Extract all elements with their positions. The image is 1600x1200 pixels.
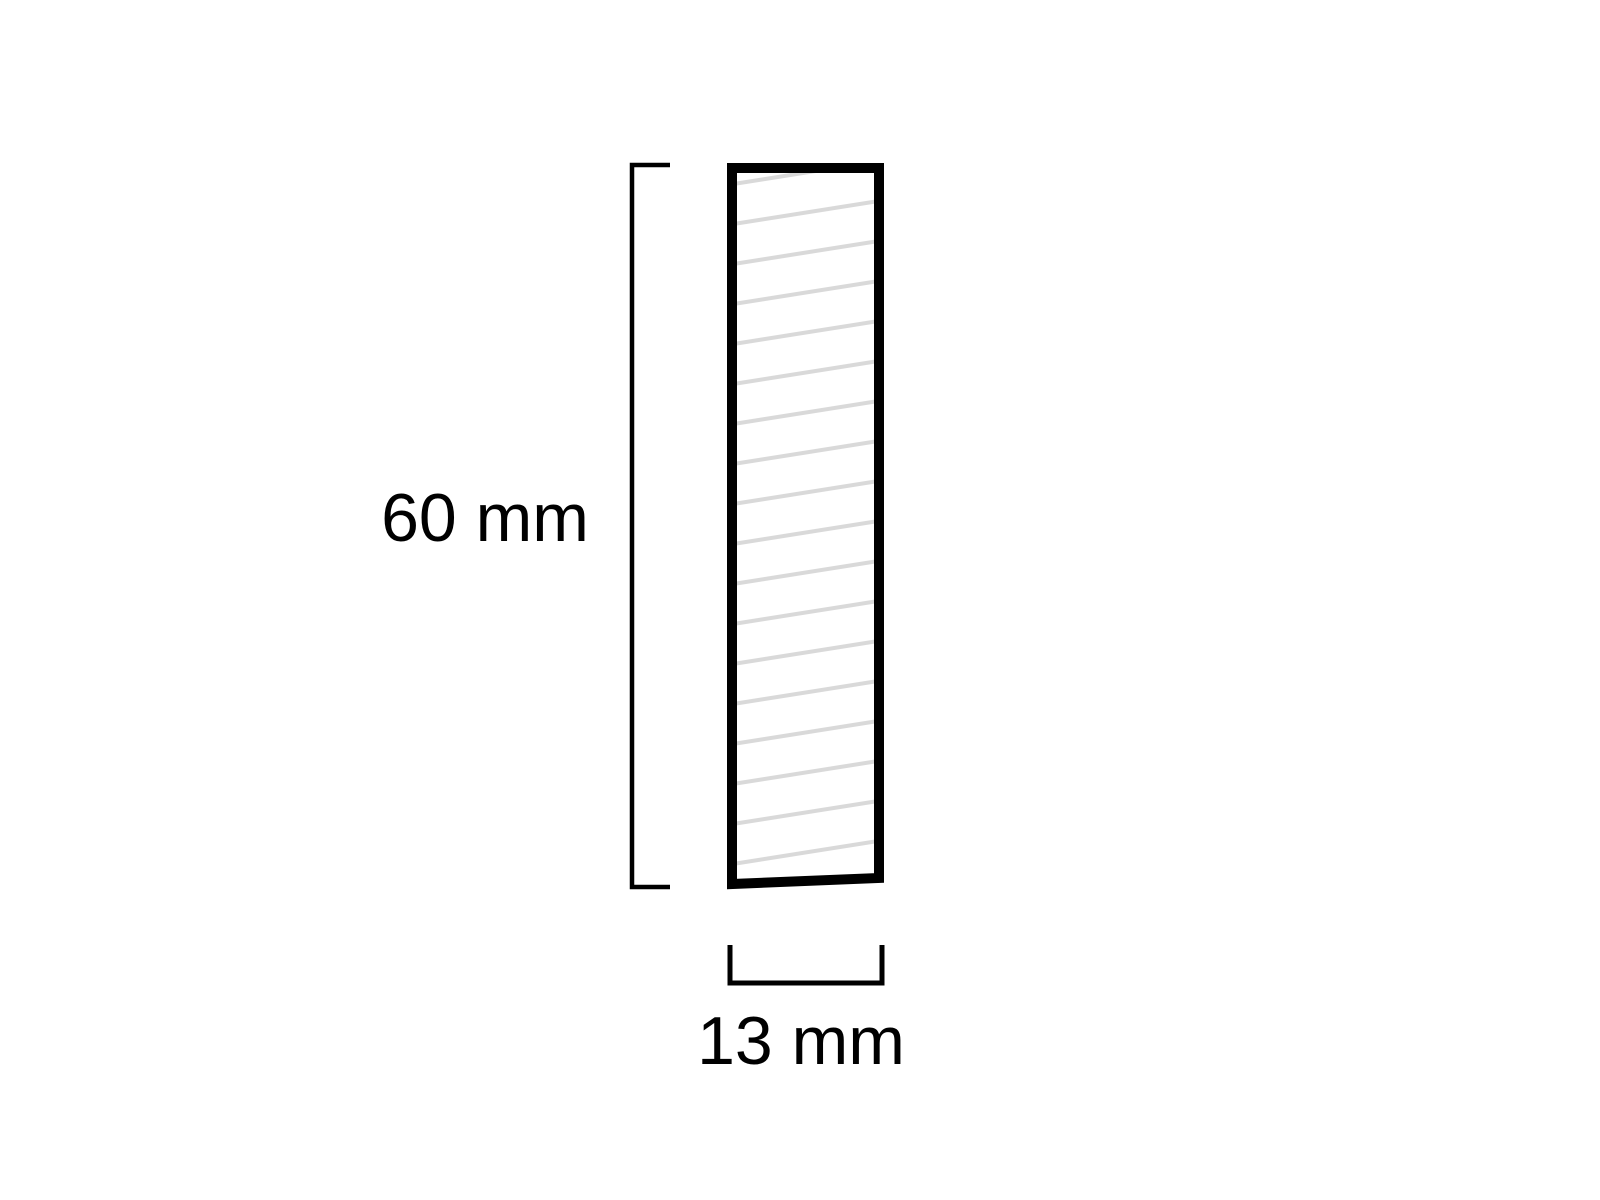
height-dimension-bracket bbox=[632, 165, 670, 887]
width-dimension-bracket bbox=[730, 945, 882, 983]
width-dimension-label: 13 mm bbox=[697, 1003, 905, 1079]
diagram-canvas: 60 mm 13 mm bbox=[0, 0, 1600, 1200]
height-dimension-label: 60 mm bbox=[381, 480, 589, 556]
profile-drawing: 60 mm 13 mm bbox=[0, 0, 1600, 1200]
profile-outline bbox=[732, 168, 879, 884]
